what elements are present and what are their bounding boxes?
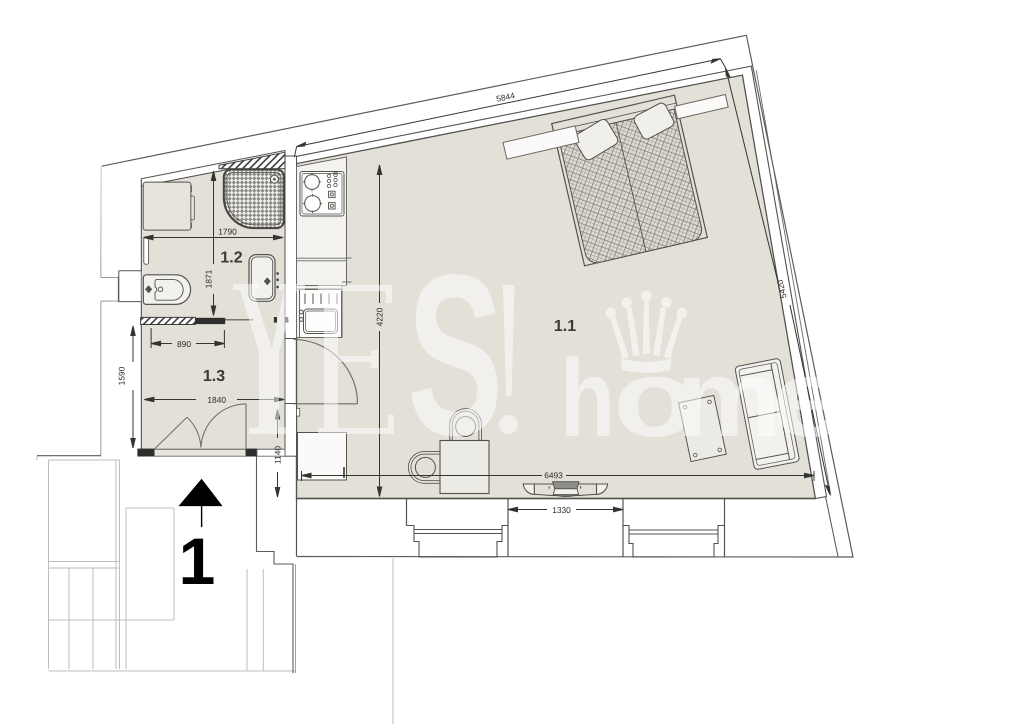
- svg-text:6493: 6493: [544, 470, 563, 480]
- svg-text:1140: 1140: [273, 446, 283, 464]
- svg-text:1871: 1871: [204, 269, 214, 288]
- svg-text:h: h: [560, 337, 615, 460]
- svg-text:4220: 4220: [375, 307, 385, 326]
- svg-text:1.2: 1.2: [220, 249, 242, 266]
- svg-text:1.3: 1.3: [203, 368, 225, 385]
- svg-text:m: m: [676, 337, 783, 460]
- svg-text:890: 890: [177, 339, 191, 349]
- svg-text:1.1: 1.1: [554, 318, 576, 335]
- svg-text:1590: 1590: [117, 366, 127, 385]
- svg-text:S: S: [407, 227, 503, 483]
- svg-text:1840: 1840: [207, 395, 226, 405]
- svg-text:1330: 1330: [552, 505, 571, 515]
- svg-text:1: 1: [179, 524, 216, 598]
- svg-text:e: e: [771, 337, 849, 460]
- svg-text:1790: 1790: [218, 226, 237, 236]
